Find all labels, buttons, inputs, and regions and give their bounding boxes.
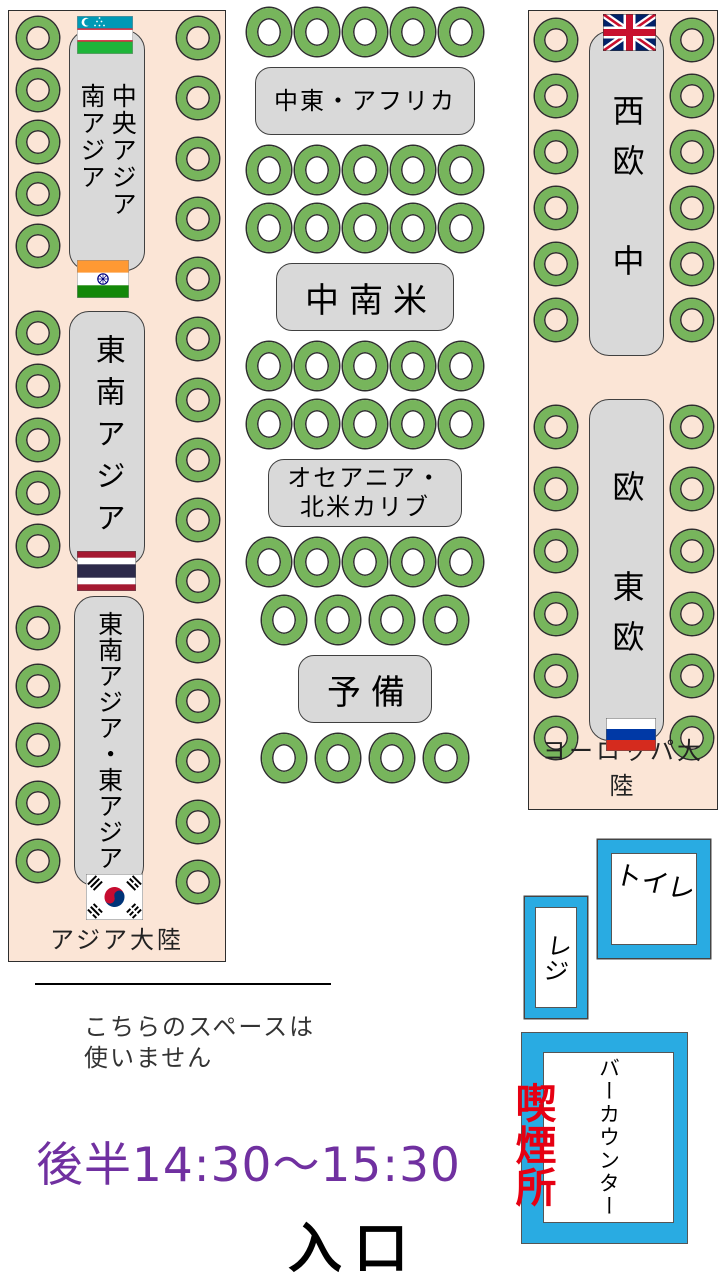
table-southeast-east-asia-label: 東南アジア・東アジア <box>93 611 124 871</box>
seat-oval <box>370 734 414 782</box>
asia-right-seat-column <box>177 17 219 903</box>
center-table-label: 中南米 <box>276 263 454 331</box>
seat-oval <box>671 593 713 635</box>
bar-counter-inner: バーカウンター <box>544 1053 673 1222</box>
seat-oval <box>439 204 483 252</box>
seat-oval <box>343 8 387 56</box>
asia-continent-label: アジア大陸 <box>9 920 225 955</box>
flag-thailand-icon <box>77 551 136 591</box>
table-southeast-east-asia: 東南アジア・東アジア <box>74 596 144 886</box>
flag-united-kingdom-icon <box>603 14 656 51</box>
flag-russia-icon <box>606 718 656 751</box>
seat-oval <box>177 138 219 180</box>
toilet-label: トイレ <box>612 852 701 908</box>
seat-oval <box>17 724 59 766</box>
seat-oval <box>17 419 59 461</box>
table-central-eastern-europe: 欧 東欧 <box>589 399 664 741</box>
seat-oval <box>370 596 414 644</box>
seat-oval <box>391 538 435 586</box>
center-seat-row <box>247 342 483 390</box>
center-seat-row <box>247 538 483 586</box>
seat-oval <box>343 204 387 252</box>
center-seat-row <box>247 204 483 252</box>
seat-oval <box>535 131 577 173</box>
seat-oval <box>295 342 339 390</box>
seat-oval <box>391 146 435 194</box>
seat-oval <box>17 69 59 111</box>
seat-oval <box>17 525 59 567</box>
seat-oval <box>17 840 59 882</box>
entrance-label: 入口 <box>288 1204 420 1280</box>
seat-oval <box>343 146 387 194</box>
seat-oval <box>295 538 339 586</box>
europe-right-seat-column <box>671 19 713 759</box>
center-seat-row <box>247 400 483 448</box>
seat-oval <box>247 400 291 448</box>
seat-oval <box>671 187 713 229</box>
europe-left-seat-column <box>535 19 577 759</box>
seat-oval <box>535 468 577 510</box>
seat-oval <box>671 468 713 510</box>
europe-continent-area: 西欧 中 欧 東欧 ヨーロッパ大陸 <box>528 10 718 810</box>
seat-oval <box>17 17 59 59</box>
seat-oval <box>17 665 59 707</box>
seat-oval <box>177 620 219 662</box>
seat-oval <box>262 596 306 644</box>
seat-oval <box>424 596 468 644</box>
seat-oval <box>247 146 291 194</box>
seat-oval <box>535 243 577 285</box>
seat-oval <box>671 406 713 448</box>
seat-oval <box>671 131 713 173</box>
center-seat-row <box>262 734 468 782</box>
seat-oval <box>535 19 577 61</box>
seat-oval <box>316 596 360 644</box>
center-table-label: 予備 <box>298 655 432 723</box>
seat-oval <box>391 342 435 390</box>
seat-oval <box>671 19 713 61</box>
seat-oval <box>295 8 339 56</box>
center-table-label: オセアニア・ 北米カリブ <box>268 459 462 527</box>
seat-oval <box>17 173 59 215</box>
seat-oval <box>439 400 483 448</box>
session-time-label: 後半14:30〜15:30 <box>36 1126 461 1195</box>
seat-oval <box>343 342 387 390</box>
seat-oval <box>177 439 219 481</box>
seat-oval <box>535 655 577 697</box>
seat-oval <box>535 299 577 341</box>
smoking-area-label: 喫煙所 <box>502 1082 562 1208</box>
seat-oval <box>391 8 435 56</box>
flag-uzbekistan-icon <box>77 16 133 54</box>
table-central-eastern-europe-label: 欧 東欧 <box>607 470 647 670</box>
seat-oval <box>535 593 577 635</box>
register-box: レジ <box>525 897 587 1018</box>
seat-oval <box>295 204 339 252</box>
center-seat-row <box>247 8 483 56</box>
unused-space-divider-line <box>35 983 331 985</box>
table-western-europe: 西欧 中 <box>589 31 664 356</box>
center-seat-row <box>262 596 468 644</box>
seat-oval <box>535 406 577 448</box>
seat-oval <box>177 499 219 541</box>
table-western-europe-label: 西欧 中 <box>607 94 647 294</box>
seat-oval <box>343 538 387 586</box>
seat-oval <box>177 379 219 421</box>
seat-oval <box>247 204 291 252</box>
seat-oval <box>17 312 59 354</box>
center-table-label: 中東・アフリカ <box>255 67 475 135</box>
seat-oval <box>671 243 713 285</box>
seat-oval <box>177 680 219 722</box>
flag-south-korea-icon <box>86 874 143 920</box>
center-seat-row <box>247 146 483 194</box>
flag-india-icon <box>77 260 129 298</box>
seat-oval <box>316 734 360 782</box>
seat-oval <box>671 530 713 572</box>
seat-oval <box>295 400 339 448</box>
seat-oval <box>17 225 59 267</box>
bar-counter-label: バーカウンター <box>594 1057 624 1218</box>
seat-oval <box>177 77 219 119</box>
seat-oval <box>177 198 219 240</box>
toilet-box: トイレ <box>598 840 710 958</box>
seat-oval <box>262 734 306 782</box>
seat-oval <box>17 782 59 824</box>
seat-oval <box>17 121 59 163</box>
seat-oval <box>343 400 387 448</box>
seat-oval <box>17 365 59 407</box>
seat-oval <box>439 342 483 390</box>
seat-oval <box>391 204 435 252</box>
table-southeast-asia: 東南アジア <box>69 311 145 566</box>
unused-space-note: こちらのスペースは 使いません <box>84 1012 315 1074</box>
asia-continent-area: 中央アジア 南アジア 東南アジア 東南アジア・東アジア <box>8 10 226 962</box>
seat-oval <box>439 146 483 194</box>
seat-oval <box>535 187 577 229</box>
table-central-south-asia-label: 中央アジア 南アジア <box>76 83 139 218</box>
seat-oval <box>177 17 219 59</box>
seat-oval <box>439 538 483 586</box>
seat-oval <box>247 342 291 390</box>
asia-left-seat-column <box>17 17 59 882</box>
table-southeast-asia-label: 東南アジア <box>88 334 126 544</box>
seat-oval <box>177 740 219 782</box>
seat-oval <box>671 299 713 341</box>
seat-oval <box>391 400 435 448</box>
seat-oval <box>247 8 291 56</box>
seat-oval <box>671 75 713 117</box>
seat-oval <box>177 861 219 903</box>
seat-oval <box>439 8 483 56</box>
seat-oval <box>17 607 59 649</box>
seat-oval <box>177 560 219 602</box>
register-label: レジ <box>535 930 578 985</box>
seat-oval <box>177 801 219 843</box>
center-seating-column: 中東・アフリカ中南米オセアニア・ 北米カリブ予備 <box>245 8 485 792</box>
table-central-south-asia: 中央アジア 南アジア <box>69 30 145 271</box>
seat-oval <box>177 258 219 300</box>
seat-oval <box>247 538 291 586</box>
seat-oval <box>535 75 577 117</box>
seat-oval <box>295 146 339 194</box>
seat-oval <box>177 318 219 360</box>
seat-oval <box>17 472 59 514</box>
seat-oval <box>671 655 713 697</box>
venue-seating-map: 中央アジア 南アジア 東南アジア 東南アジア・東アジア <box>0 0 720 1280</box>
seat-oval <box>535 530 577 572</box>
seat-oval <box>424 734 468 782</box>
